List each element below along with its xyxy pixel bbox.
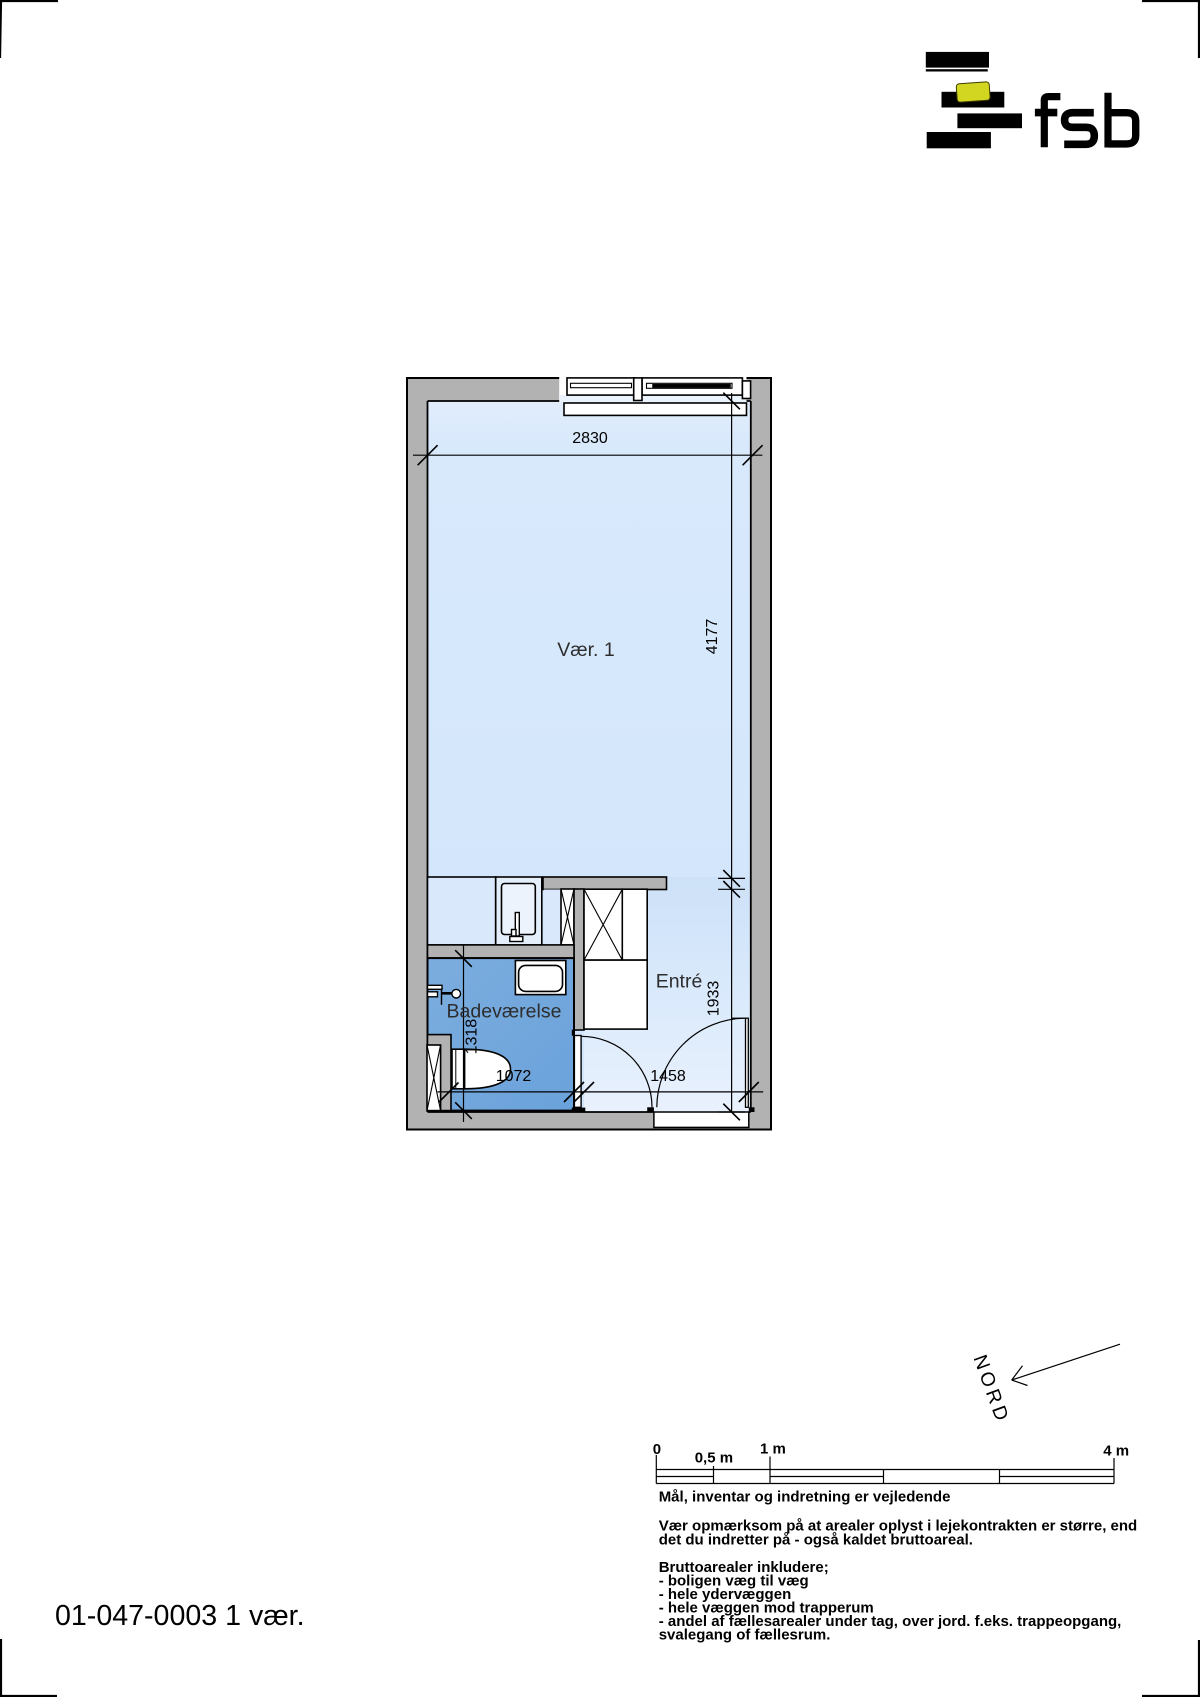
svg-text:4 m: 4 m — [1103, 1443, 1129, 1460]
svg-text:det du indretter på - også kal: det du indretter på - også kaldet brutto… — [659, 1531, 973, 1548]
svg-text:1 m: 1 m — [760, 1441, 786, 1458]
svg-text:1318: 1318 — [464, 1019, 481, 1055]
svg-text:Vær. 1: Vær. 1 — [557, 639, 614, 661]
svg-text:svalegang of fællesrum.: svalegang of fællesrum. — [659, 1627, 831, 1644]
svg-text:0: 0 — [653, 1441, 661, 1458]
svg-text:1072: 1072 — [496, 1068, 532, 1085]
svg-text:Entré: Entré — [656, 971, 703, 993]
svg-text:0,5 m: 0,5 m — [695, 1449, 733, 1466]
svg-text:NORD: NORD — [969, 1352, 1014, 1427]
svg-text:1933: 1933 — [706, 981, 723, 1017]
svg-text:1458: 1458 — [650, 1068, 686, 1085]
svg-text:01-047-0003 1 vær.: 01-047-0003 1 vær. — [55, 1600, 305, 1632]
svg-text:Mål, inventar og indretning er: Mål, inventar og indretning er vejledend… — [659, 1489, 951, 1506]
svg-text:2830: 2830 — [572, 430, 608, 447]
svg-text:4177: 4177 — [704, 619, 721, 655]
